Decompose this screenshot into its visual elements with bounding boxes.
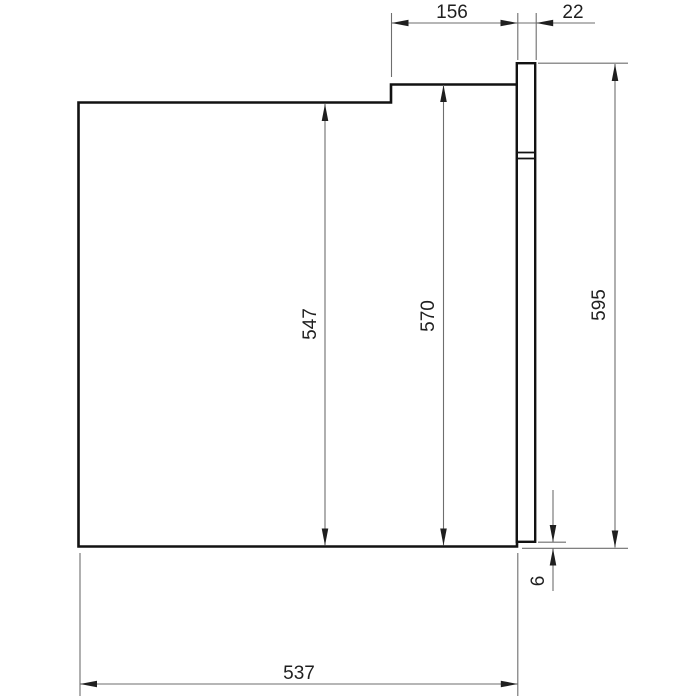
dimension-overall-height: 595 <box>522 63 628 548</box>
dimension-rear-height: 547 <box>300 104 328 546</box>
dimension-label-547: 547 <box>300 308 321 340</box>
dimension-front-height: 570 <box>418 85 447 546</box>
arrowhead-down <box>550 525 557 542</box>
dimension-body-depth: 537 <box>80 553 518 696</box>
dimension-label-537: 537 <box>283 663 315 684</box>
oven-dimension-diagram: 156 22 595 570 <box>0 0 700 700</box>
dimension-label-22: 22 <box>562 2 583 23</box>
dimension-label-6: 6 <box>528 576 549 587</box>
arrowhead-up <box>612 64 619 81</box>
dimension-label-570: 570 <box>418 300 439 332</box>
dimension-label-156: 156 <box>436 2 468 23</box>
arrowhead-down <box>440 529 447 546</box>
arrowhead-up <box>550 549 557 566</box>
oven-body-outline <box>79 85 518 547</box>
dimension-label-595: 595 <box>589 289 610 321</box>
arrowhead-up <box>440 85 447 102</box>
arrowhead-right <box>501 20 518 27</box>
oven-door-panel <box>517 63 535 542</box>
dimension-door-thickness: 22 <box>518 2 584 60</box>
arrowhead-down <box>612 531 619 548</box>
arrowhead-left <box>392 20 409 27</box>
arrowhead-left <box>80 681 97 688</box>
arrowhead-down <box>322 529 329 546</box>
arrowhead-left <box>536 20 553 27</box>
technical-drawing-canvas: 156 22 595 570 <box>0 0 700 700</box>
arrowhead-right <box>501 681 518 688</box>
arrowhead-up <box>322 104 329 121</box>
